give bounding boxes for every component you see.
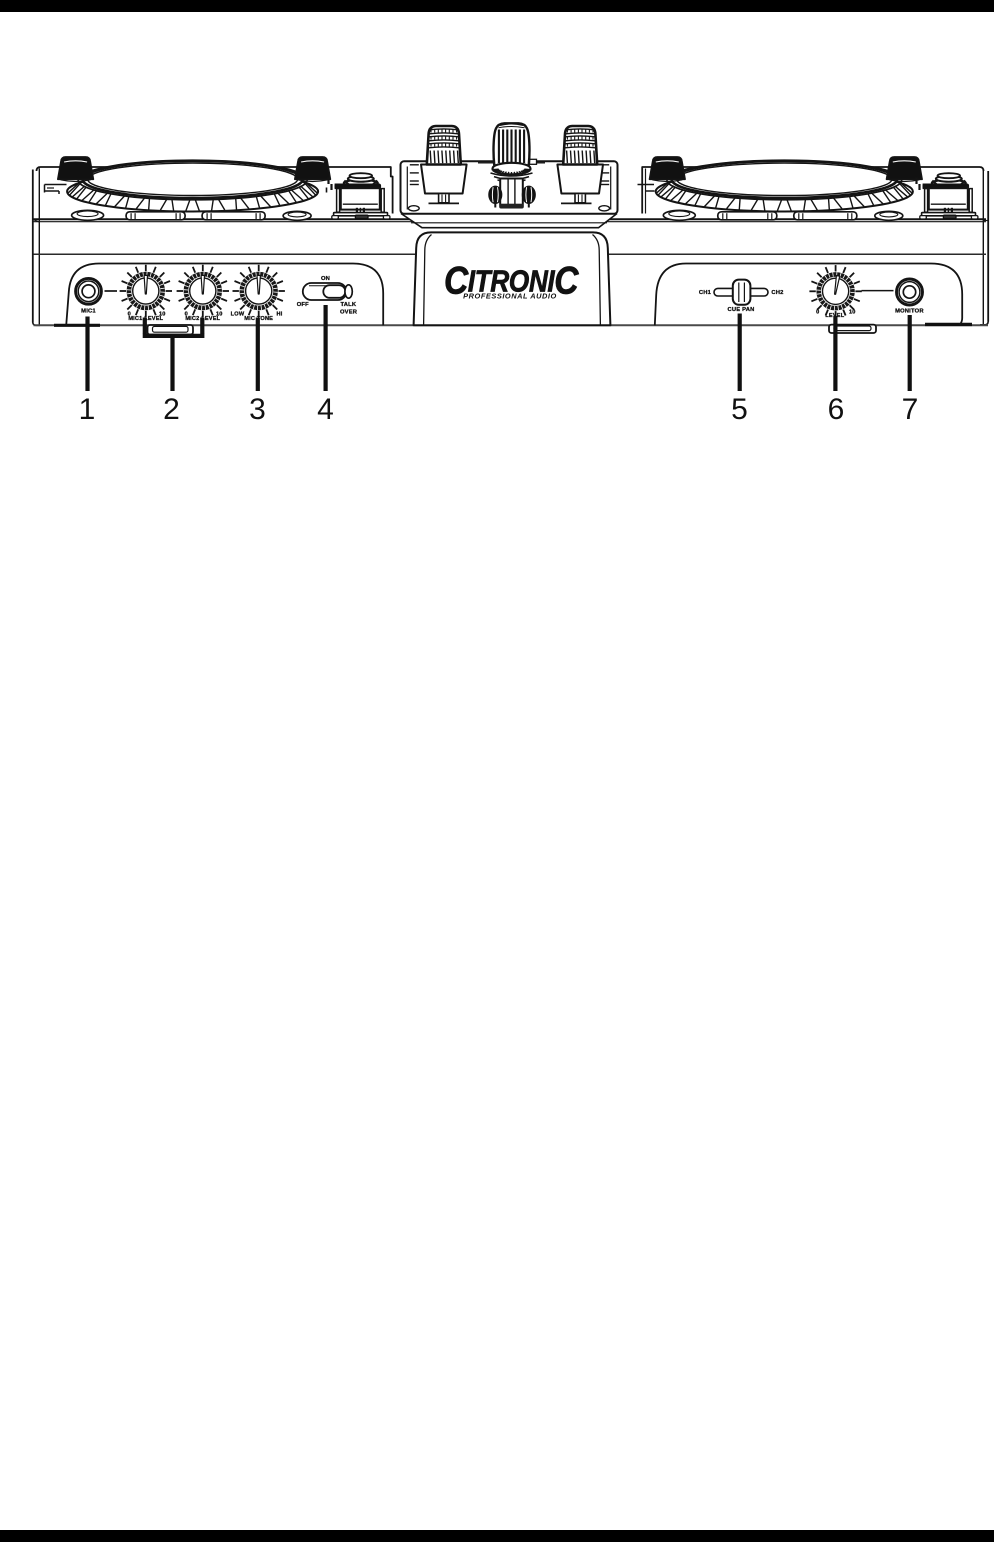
svg-text:OVER: OVER [340,310,358,316]
svg-text:CH1: CH1 [699,290,712,296]
svg-text:0: 0 [816,310,819,316]
svg-text:2: 2 [163,393,180,426]
svg-text:5: 5 [731,393,748,426]
svg-text:10: 10 [849,310,856,316]
svg-text:LOW: LOW [231,311,245,317]
svg-text:4: 4 [317,393,334,426]
svg-text:MONITOR: MONITOR [895,308,924,314]
svg-text:7: 7 [902,393,919,426]
svg-text:3: 3 [249,393,266,426]
svg-text:MIC1: MIC1 [81,309,96,315]
svg-text:1: 1 [79,393,96,426]
svg-text:PROFESSIONAL AUDIO: PROFESSIONAL AUDIO [463,291,557,300]
svg-text:CH2: CH2 [771,290,783,296]
svg-text:TALK: TALK [340,302,356,308]
svg-text:HI: HI [277,311,283,317]
svg-text:OFF: OFF [297,302,309,308]
svg-text:ON: ON [321,276,330,282]
svg-text:6: 6 [828,393,845,426]
svg-text:CUE PAN: CUE PAN [727,307,754,313]
